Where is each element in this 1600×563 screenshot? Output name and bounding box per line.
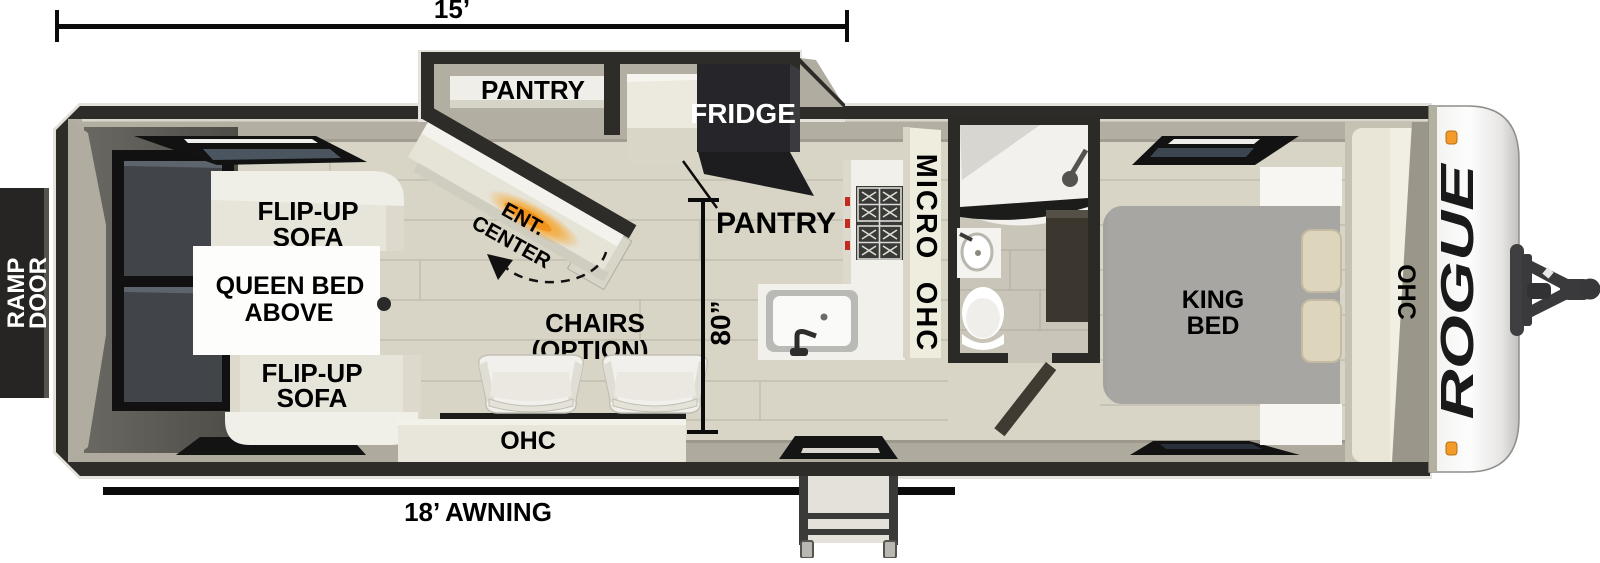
svg-text:CHAIRS: CHAIRS — [545, 308, 645, 338]
svg-text:ABOVE: ABOVE — [245, 299, 334, 327]
svg-text:80”: 80” — [705, 300, 736, 345]
svg-text:18’ AWNING: 18’ AWNING — [404, 497, 552, 527]
svg-text:OHC: OHC — [1392, 264, 1420, 320]
svg-text:OHC: OHC — [500, 427, 556, 455]
svg-text:FRIDGE: FRIDGE — [690, 98, 796, 129]
svg-text:KING: KING — [1182, 286, 1245, 314]
svg-text:DOOR: DOOR — [25, 257, 52, 329]
svg-text:PANTRY: PANTRY — [716, 207, 836, 240]
svg-text:SOFA: SOFA — [277, 383, 348, 413]
svg-text:15’: 15’ — [434, 0, 470, 24]
svg-text:QUEEN BED: QUEEN BED — [216, 272, 365, 300]
svg-text:OHC: OHC — [910, 282, 942, 352]
svg-text:BED: BED — [1187, 312, 1240, 340]
svg-text:MICRO: MICRO — [910, 154, 942, 261]
svg-text:PANTRY: PANTRY — [481, 75, 585, 105]
svg-text:ROGUE: ROGUE — [1431, 163, 1483, 420]
